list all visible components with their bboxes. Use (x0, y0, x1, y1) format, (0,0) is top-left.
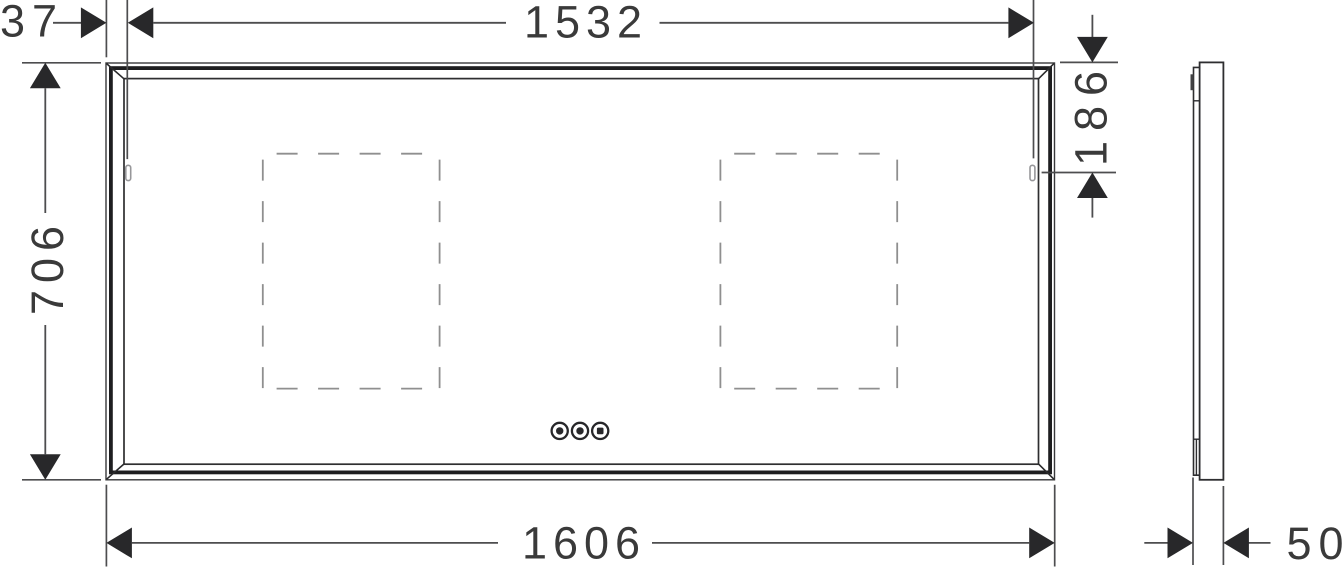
svg-text:186: 186 (1066, 61, 1117, 166)
svg-text:1532: 1532 (524, 0, 648, 48)
svg-text:706: 706 (22, 219, 73, 315)
svg-text:1606: 1606 (522, 518, 646, 569)
svg-text:37: 37 (0, 0, 64, 47)
svg-text:50: 50 (1286, 518, 1343, 569)
